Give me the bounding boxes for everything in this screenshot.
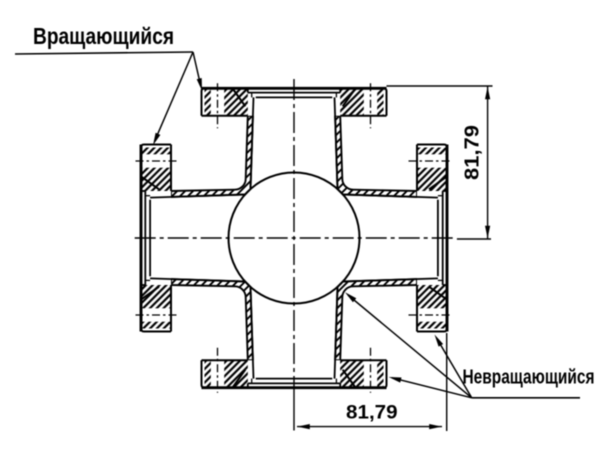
svg-text:Вращающийся: Вращающийся [33,23,174,49]
svg-text:Невращающийся: Невращающийся [463,367,595,389]
svg-text:81,79: 81,79 [346,403,398,424]
svg-text:81,79: 81,79 [462,125,484,180]
